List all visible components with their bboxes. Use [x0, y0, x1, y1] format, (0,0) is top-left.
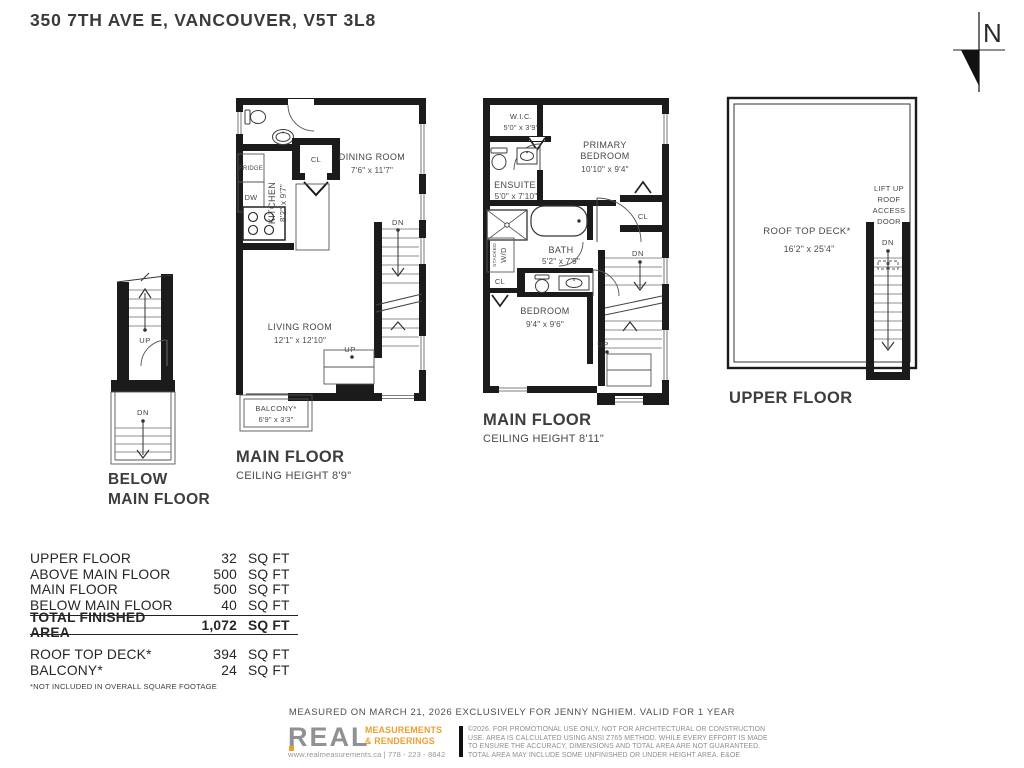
entry-door-arc	[288, 99, 314, 131]
fridge-label: FRIDGE	[239, 166, 263, 172]
stairs	[874, 249, 902, 350]
area-table: UPPER FLOOR 32 SQ FT ABOVE MAIN FLOOR 50…	[30, 551, 298, 691]
dining-room-label: DINING ROOM	[339, 152, 405, 162]
closet2-label: CL	[638, 212, 648, 221]
logo-contact: www.realmeasurements.ca | 778 - 223 - 88…	[288, 750, 445, 759]
balcony-dims: 6'9" x 3'3"	[259, 415, 294, 424]
dining-room-dims: 7'6" x 11'7"	[351, 166, 393, 175]
sink-icon	[517, 148, 537, 164]
main-floor-left-plan-drawing: CL FRIDGE DW KITCHEN 8'2" x 9'7" DINING …	[236, 98, 426, 434]
north-arrow-icon: N	[945, 4, 1007, 100]
up-label: UP	[597, 340, 609, 349]
roof-deck-label: ROOF TOP DECK*	[763, 226, 850, 237]
bath-label: BATH	[549, 245, 574, 255]
primary-bedroom-label2: BEDROOM	[580, 151, 629, 161]
floor-plan-page: 350 7TH AVE E, VANCOUVER, V5T 3L8 N UP	[0, 0, 1024, 768]
toilet-icon	[245, 110, 266, 124]
main-floor-left-name: MAIN FLOOR CEILING HEIGHT 8'9"	[236, 448, 351, 482]
balcony-label: BALCONY*	[255, 404, 296, 413]
table-row: MAIN FLOOR 500 SQ FT	[30, 582, 298, 598]
kitchen-counter	[296, 184, 329, 250]
table-row: ROOF TOP DECK* 394 SQ FT	[30, 647, 298, 663]
up-label: UP	[344, 345, 356, 354]
washer-dryer-label2: W/D	[499, 247, 508, 263]
bathtub-icon	[531, 206, 587, 236]
dn-label: DN	[632, 249, 644, 258]
upper-floor-plan-drawing: ROOF TOP DECK* 16'2" x 25'4" LIFT UP ROO…	[726, 96, 918, 386]
svg-text:LIFT UP: LIFT UP	[874, 184, 904, 193]
living-room-dims: 12'1" x 12'10"	[274, 336, 326, 345]
dn-label: DN	[137, 408, 149, 417]
lower-stairs	[111, 392, 175, 464]
company-logo: REAL MEASUREMENTS & RENDERINGS www.realm…	[288, 722, 460, 762]
upper-stairs	[129, 289, 161, 332]
toilet-icon	[491, 148, 507, 170]
north-label: N	[983, 18, 1002, 48]
bath-dims: 5'2" x 7'9"	[542, 257, 580, 266]
closet-label: CL	[311, 155, 321, 164]
logo-wordmark: REAL	[288, 722, 370, 753]
roof-access-label: LIFT UP ROOF ACCESS DOOR	[873, 184, 906, 226]
bedroom-dims: 9'4" x 9'6"	[526, 320, 564, 329]
svg-text:ROOF: ROOF	[878, 195, 901, 204]
below-main-floor-name: BELOW MAIN FLOOR	[108, 470, 210, 509]
stairs	[324, 228, 422, 384]
wic-dims: 5'0" x 3'9"	[504, 123, 539, 132]
table-row: UPPER FLOOR 32 SQ FT	[30, 551, 298, 567]
kitchen-label: KITCHEN	[267, 182, 277, 224]
washer-dryer-label1: STACKED	[492, 243, 498, 267]
footer-divider	[459, 726, 463, 757]
bedroom-label: BEDROOM	[520, 306, 569, 316]
bedroom-door-arc	[593, 270, 619, 296]
table-row: ABOVE MAIN FLOOR 500 SQ FT	[30, 567, 298, 583]
dn-label: DN	[392, 218, 404, 227]
primary-bedroom-dims: 10'10" x 9'4"	[581, 165, 629, 174]
closet1-door	[492, 295, 508, 306]
closet1-label: CL	[495, 277, 505, 286]
dishwasher-label: DW	[244, 193, 258, 202]
closet	[292, 138, 340, 195]
main-floor-right-name: MAIN FLOOR CEILING HEIGHT 8'11"	[483, 411, 604, 445]
ensuite-label: ENSUITE	[494, 180, 536, 190]
sink-icon	[273, 130, 294, 145]
wic-label: W.I.C.	[510, 112, 532, 121]
stairs	[605, 258, 662, 386]
upper-floor-name: UPPER FLOOR	[729, 389, 853, 408]
dn-label: DN	[882, 238, 894, 247]
page-title: 350 7TH AVE E, VANCOUVER, V5T 3L8	[30, 10, 376, 31]
sink2-icon	[559, 276, 589, 290]
main-floor-right-plan-drawing: W.I.C. 5'0" x 3'9" ENSUITE 5'0" x 7'10"	[483, 98, 669, 410]
roof-deck-dims: 16'2" x 25'4"	[784, 244, 835, 254]
table-footnote: *NOT INCLUDED IN OVERALL SQUARE FOOTAGE	[30, 682, 298, 691]
measured-statement: MEASURED ON MARCH 21, 2026 EXCLUSIVELY F…	[0, 707, 1024, 718]
toilet2-icon	[535, 275, 549, 293]
below-main-floor-plan-drawing: UP DN	[103, 262, 218, 472]
shower-icon	[487, 210, 527, 240]
living-room-label: LIVING ROOM	[268, 322, 332, 332]
kitchen-dims: 8'2" x 9'7"	[279, 184, 288, 222]
ensuite-dims: 5'0" x 7'10"	[495, 192, 538, 201]
table-total-row: TOTAL FINISHED AREA 1,072 SQ FT	[30, 615, 298, 635]
svg-text:ACCESS: ACCESS	[873, 206, 906, 215]
table-row: BALCONY* 24 SQ FT	[30, 662, 298, 678]
disclaimer-text: ©2026. FOR PROMOTIONAL USE ONLY, NOT FOR…	[468, 726, 768, 761]
primary-bedroom-label1: PRIMARY	[583, 140, 627, 150]
svg-text:DOOR: DOOR	[877, 217, 901, 226]
up-label: UP	[139, 336, 151, 345]
logo-subtitle: MEASUREMENTS & RENDERINGS	[365, 725, 442, 746]
closet2-door	[635, 182, 651, 193]
